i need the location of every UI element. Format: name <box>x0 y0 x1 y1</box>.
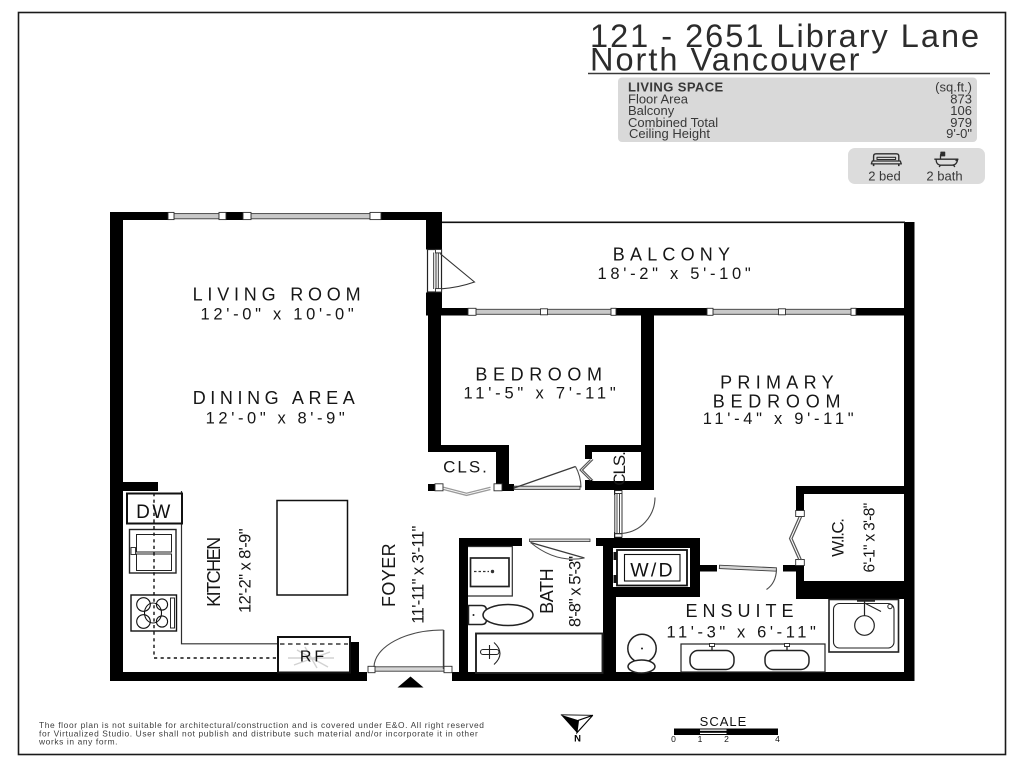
svg-text:W/D: W/D <box>630 560 675 582</box>
svg-text:2 bath: 2 bath <box>926 169 962 184</box>
svg-text:11'-3" x 6'-11": 11'-3" x 6'-11" <box>666 623 819 641</box>
svg-text:BATH: BATH <box>537 569 557 614</box>
svg-text:2 bed: 2 bed <box>868 169 901 184</box>
svg-text:11'-4" x 9'-11": 11'-4" x 9'-11" <box>703 410 858 428</box>
svg-text:RF: RF <box>300 649 327 666</box>
svg-text:PRIMARY: PRIMARY <box>720 373 839 393</box>
svg-text:LIVING ROOM: LIVING ROOM <box>193 285 366 305</box>
svg-text:ENSUITE: ENSUITE <box>685 601 798 621</box>
svg-text:BEDROOM: BEDROOM <box>475 364 607 384</box>
svg-text:6'-1" x 3'-8": 6'-1" x 3'-8" <box>862 503 879 572</box>
svg-text:CLS.: CLS. <box>443 458 489 477</box>
svg-text:4: 4 <box>775 734 780 744</box>
svg-text:FOYER: FOYER <box>379 543 399 607</box>
svg-text:BALCONY: BALCONY <box>613 245 735 265</box>
svg-text:N: N <box>574 734 581 745</box>
svg-text:18'-2" x 5'-10": 18'-2" x 5'-10" <box>598 265 755 283</box>
svg-text:12'-2" x 8'-9": 12'-2" x 8'-9" <box>237 528 255 613</box>
svg-text:9'-0": 9'-0" <box>946 126 972 141</box>
svg-text:1: 1 <box>698 734 703 744</box>
svg-text:BEDROOM: BEDROOM <box>713 392 847 412</box>
svg-text:8'-8" x 5'-3": 8'-8" x 5'-3" <box>567 556 585 627</box>
svg-text:W.I.C.: W.I.C. <box>829 519 848 557</box>
svg-text:works in any form.: works in any form. <box>38 736 118 746</box>
svg-text:11'-5" x 7'-11": 11'-5" x 7'-11" <box>463 385 619 403</box>
svg-text:2: 2 <box>724 734 729 744</box>
svg-text:Ceiling Height: Ceiling Height <box>629 126 710 141</box>
svg-text:SCALE: SCALE <box>700 714 748 729</box>
svg-text:11'-11" x 3'-11": 11'-11" x 3'-11" <box>410 526 428 624</box>
svg-text:North Vancouver: North Vancouver <box>590 42 861 78</box>
svg-text:CLS.: CLS. <box>610 452 629 486</box>
svg-text:12'-0" x 8'-9": 12'-0" x 8'-9" <box>206 410 349 428</box>
svg-text:DINING AREA: DINING AREA <box>193 388 360 408</box>
svg-text:0: 0 <box>671 734 676 744</box>
svg-text:KITCHEN: KITCHEN <box>204 538 224 607</box>
svg-text:12'-0" x 10'-0": 12'-0" x 10'-0" <box>201 306 358 324</box>
